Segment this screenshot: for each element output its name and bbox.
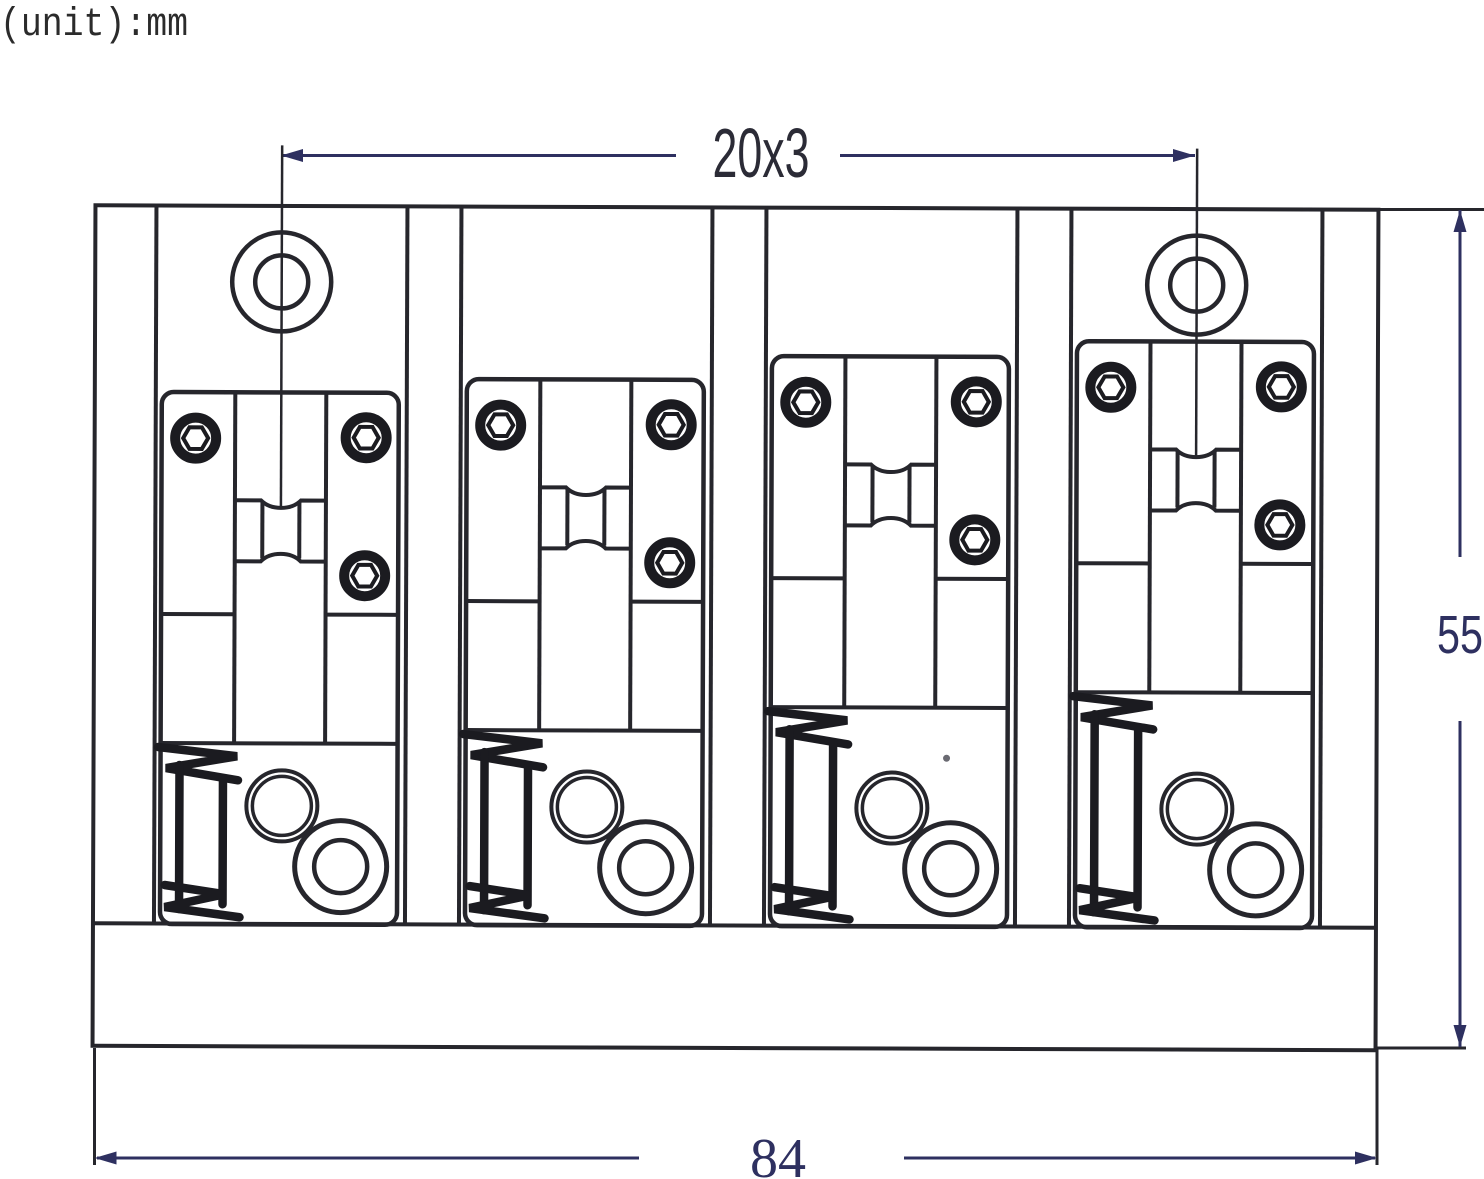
svg-text:(unit):mm: (unit):mm xyxy=(0,3,188,48)
svg-text:55: 55 xyxy=(1437,605,1483,665)
svg-text:84: 84 xyxy=(750,1128,806,1179)
svg-text:20x3: 20x3 xyxy=(713,114,810,192)
